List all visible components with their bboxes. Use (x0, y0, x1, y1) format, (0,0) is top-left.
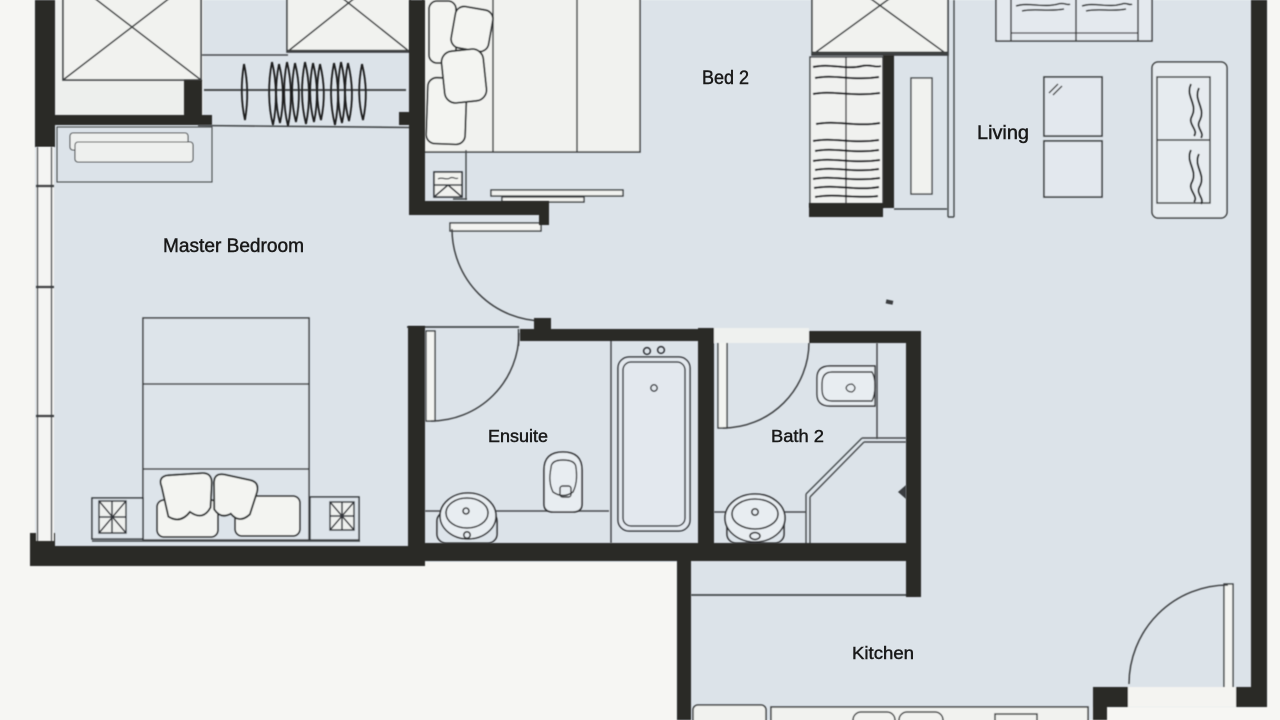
svg-text:Bath 2: Bath 2 (771, 426, 824, 446)
svg-text:Living: Living (977, 123, 1029, 144)
svg-text:Master Bedroom: Master Bedroom (163, 236, 304, 257)
svg-text:Kitchen: Kitchen (852, 643, 914, 663)
svg-text:Bed 2: Bed 2 (702, 68, 749, 89)
svg-text:Ensuite: Ensuite (488, 426, 548, 446)
